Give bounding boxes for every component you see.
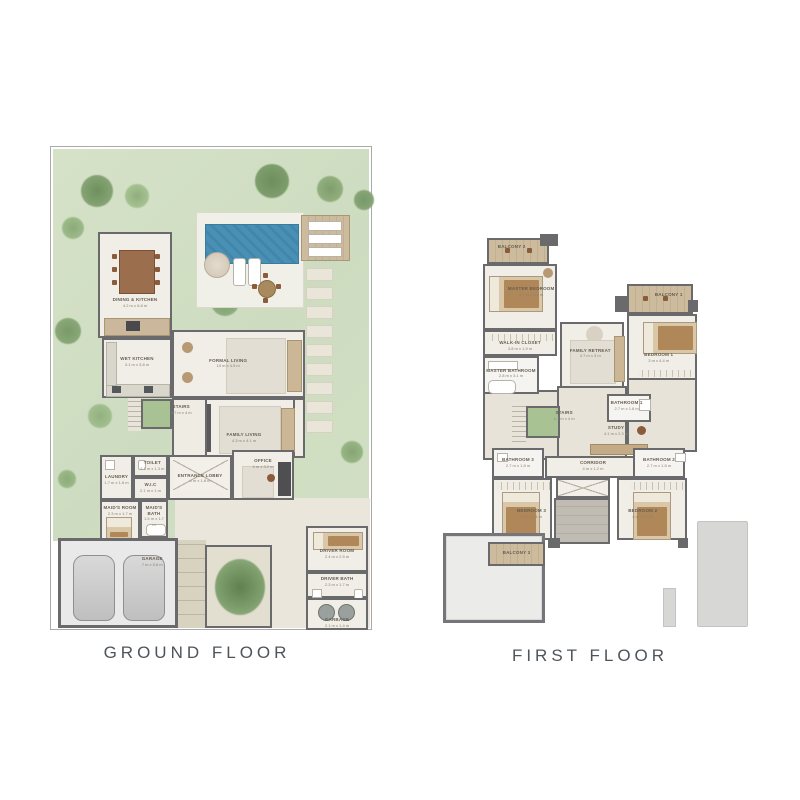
- office-desk: [278, 462, 291, 496]
- wall-stub: [615, 296, 629, 312]
- washer: [105, 460, 115, 470]
- void-x: [556, 478, 610, 498]
- tree: [55, 318, 81, 344]
- parasol: [204, 252, 230, 278]
- wardrobe: [629, 482, 685, 490]
- room-wet-kitchen: WET KITCHEN 3.1 m x 3.8 m: [102, 338, 172, 398]
- room-entrance-lobby: ENTRANCE LOBBY 4 m x 1.8 m: [168, 455, 232, 500]
- tree: [81, 175, 113, 207]
- tree: [125, 184, 149, 208]
- room-dims: 1.7 m x 1.6 m: [102, 480, 131, 485]
- stair-steps: [512, 402, 526, 446]
- room-label: MAID'S ROOM: [102, 505, 138, 511]
- room-label: DRIVER BATH: [308, 576, 366, 582]
- room-label: DINING & KITCHEN: [100, 297, 170, 303]
- dining-chair: [112, 280, 117, 285]
- room-dims: 3 m x 4.4 m: [622, 358, 695, 363]
- outdoor-chair: [263, 273, 268, 278]
- brick-path: [178, 540, 206, 628]
- office-chair: [267, 474, 275, 482]
- deck-lounger: [308, 234, 342, 244]
- room-maids-room: MAID'S ROOM 2.3 m x 1.7 m: [100, 500, 140, 540]
- basin: [312, 589, 322, 598]
- stair-steps: [128, 398, 141, 431]
- room-bedroom-1: BEDROOM 1 3 m x 4.4 m: [627, 314, 697, 380]
- first-floor-title: FIRST FLOOR: [450, 646, 730, 666]
- outdoor-chair: [252, 284, 257, 289]
- room-label: GARBAGE: [308, 617, 366, 623]
- courtyard-planter: [205, 545, 272, 628]
- outdoor-chair: [263, 298, 268, 303]
- room-label: WALK-IN CLOSET: [485, 340, 555, 346]
- room-bathroom-1: BATHROOM 1 2.7 m x 1.8 m: [607, 394, 651, 422]
- stepping-stone: [306, 344, 333, 357]
- roof-slab-small: [663, 588, 676, 627]
- wall-stub: [688, 300, 698, 312]
- room-dims: 2.7 m x 1.8 m: [494, 463, 542, 468]
- stepping-stone: [306, 382, 333, 395]
- room-garage: GARAGE 7 m x 5.6 m: [58, 538, 178, 628]
- room-dims: 2.1 m x 1 m: [135, 488, 166, 493]
- living-rug: [226, 338, 286, 394]
- toilet-fixture: [138, 460, 146, 470]
- dining-chair: [112, 267, 117, 272]
- first-floor-plan: BALCONY 2 MASTER BEDROOM 4.7 m x 3.8 m W…: [400, 0, 800, 700]
- room-dims: 3.8 m x 1.9 m: [485, 346, 555, 351]
- room-dims: 4.2 m x 6.8 m: [100, 303, 170, 308]
- stair-planter: [526, 406, 560, 438]
- room-label: BALCONY 2: [476, 244, 547, 250]
- ground-floor-plan: DINING & KITCHEN 4.2 m x 6.8 m WET KITCH…: [0, 0, 400, 700]
- bathtub: [146, 524, 166, 536]
- balcony-chair: [505, 248, 510, 253]
- deck-lounger: [308, 247, 342, 257]
- stepping-stone: [306, 306, 333, 319]
- room-master-bathroom: MASTER BATHROOM 2.8 m x 3.1 m: [483, 356, 539, 394]
- master-bed: [489, 276, 543, 312]
- tree: [354, 190, 374, 210]
- garbage-bin: [338, 604, 355, 621]
- room-label: MAID'S BATH: [142, 505, 166, 517]
- stepping-stone: [306, 363, 333, 376]
- dining-chair: [112, 254, 117, 259]
- room-label: BALCONY 3: [490, 550, 543, 556]
- stepping-stone: [306, 401, 333, 414]
- balcony-chair: [643, 296, 648, 301]
- room-family-living: FAMILY LIVING 4.3 m x 4.1 m: [205, 398, 295, 458]
- room-dims: 2.8 m x 3.1 m: [485, 373, 537, 378]
- family-rug: [219, 406, 281, 454]
- room-bathroom-3: BATHROOM 3 2.7 m x 1.8 m: [492, 448, 544, 478]
- bathtub: [488, 380, 516, 394]
- dining-chair: [155, 254, 160, 259]
- tree: [58, 470, 76, 488]
- stepping-stone: [306, 420, 333, 433]
- room-bathroom-2: BATHROOM 2 2.7 m x 1.8 m: [633, 448, 685, 478]
- sofa: [281, 408, 295, 452]
- balcony-chair: [527, 248, 532, 253]
- stair-planter: [141, 399, 172, 429]
- tv-wall: [207, 404, 211, 452]
- room-dims: 2.1 m x 1.4 m: [308, 623, 366, 628]
- room-walk-in-closet: WALK-IN CLOSET 3.8 m x 1.9 m: [483, 330, 557, 356]
- basin: [497, 453, 508, 462]
- balcony-chair: [663, 296, 668, 301]
- courtyard-tree: [215, 559, 265, 615]
- wardrobe: [496, 482, 550, 490]
- vanity: [488, 361, 518, 370]
- room-label: CORRIDOR: [547, 460, 639, 466]
- retreat-rug: [570, 340, 616, 384]
- room-balcony-3: BALCONY 3: [488, 542, 545, 566]
- room-family-retreat: FAMILY RETREAT 4.7 m x 3 m: [560, 322, 624, 388]
- stepping-stone: [306, 287, 333, 300]
- room-label: LAUNDRY: [102, 474, 131, 480]
- study-chair: [637, 426, 646, 435]
- stair-void: [554, 498, 610, 544]
- room-label: BALCONY 1: [646, 292, 691, 298]
- room-driver-bath: DRIVER BATH 2.3 m x 1.7 m: [306, 572, 368, 598]
- tree: [88, 404, 112, 428]
- side-table: [182, 342, 193, 353]
- tree: [255, 164, 289, 198]
- wall-stub: [540, 234, 558, 246]
- dining-table: [119, 250, 155, 294]
- room-bedroom-2: BEDROOM 2 4 m x 3.4 m: [617, 478, 687, 540]
- stove: [126, 321, 140, 331]
- ground-floor-title: GROUND FLOOR: [57, 643, 337, 663]
- dining-chair: [155, 280, 160, 285]
- room-balcony-1: BALCONY 1: [627, 284, 693, 314]
- wall-stub: [678, 538, 688, 548]
- appliance: [112, 386, 121, 393]
- driver-bed: [313, 532, 363, 550]
- outdoor-chair: [276, 284, 281, 289]
- car: [73, 555, 115, 621]
- tree: [317, 176, 343, 202]
- outdoor-table: [258, 280, 276, 298]
- room-dims: 4 m x 1.2 m: [547, 466, 639, 471]
- wall-stub: [548, 538, 560, 548]
- room-dining-kitchen: DINING & KITCHEN 4.2 m x 6.8 m: [98, 232, 172, 338]
- sun-lounger: [248, 258, 261, 286]
- room-garbage: GARBAGE 2.1 m x 1.4 m: [306, 598, 368, 630]
- room-laundry: LAUNDRY 1.7 m x 1.6 m: [100, 455, 133, 500]
- room-driver-room: DRIVER ROOM 2.4 m x 2.5 m: [306, 526, 368, 572]
- room-office: OFFICE 4 m x 3.2 m: [232, 450, 294, 500]
- room-stairs: STAIRS 1.7 m x 4 m: [126, 396, 206, 434]
- basin: [675, 453, 686, 462]
- room-master-bedroom: MASTER BEDROOM 4.7 m x 3.8 m: [483, 264, 557, 330]
- floorplan-page: DINING & KITCHEN 4.2 m x 6.8 m WET KITCH…: [0, 0, 800, 800]
- room-dims: 2.7 m x 1.8 m: [635, 463, 683, 468]
- bed: [633, 492, 671, 540]
- wet-kitchen-counter: [106, 342, 117, 386]
- room-toilet: TOILET 2.1 m x 1.3 m: [133, 455, 168, 477]
- room-maids-bath: MAID'S BATH 1.5 m x 1.7 m: [140, 500, 168, 538]
- tree: [62, 217, 84, 239]
- room-label: W.I.C: [135, 482, 166, 488]
- office-rug: [242, 466, 274, 498]
- room-corridor: CORRIDOR 4 m x 1.2 m: [545, 456, 641, 478]
- roof-slab-large: [697, 521, 748, 627]
- room-bedroom-3: BEDROOM 3 4 m x 3.4 m: [492, 478, 552, 540]
- shower: [639, 399, 651, 411]
- side-table: [182, 372, 193, 383]
- dining-chair: [155, 267, 160, 272]
- appliance: [144, 386, 153, 393]
- sofa: [614, 336, 625, 382]
- bed: [643, 322, 697, 354]
- deck-lounger: [308, 221, 342, 231]
- room-formal-living: FORMAL LIVING 10 m x 4.5 m: [172, 330, 305, 398]
- room-wic: W.I.C 2.1 m x 1 m: [133, 477, 168, 500]
- sofa: [287, 340, 302, 392]
- wardrobe: [637, 370, 691, 377]
- room-dims: 2.4 m x 2.5 m: [308, 554, 366, 559]
- wardrobe: [487, 334, 553, 341]
- tree: [341, 441, 363, 463]
- stepping-stone: [306, 268, 333, 281]
- lobby-mat: [173, 460, 228, 490]
- room-stairs-first: STAIRS 1.7 m x 4 m: [508, 398, 586, 450]
- garbage-bin: [318, 604, 335, 621]
- pouf: [543, 268, 553, 278]
- room-dims: 2.3 m x 1.7 m: [102, 511, 138, 516]
- stepping-stone: [306, 325, 333, 338]
- room-dims: 2.3 m x 1.7 m: [308, 582, 366, 587]
- car: [123, 555, 165, 621]
- sun-lounger: [233, 258, 246, 286]
